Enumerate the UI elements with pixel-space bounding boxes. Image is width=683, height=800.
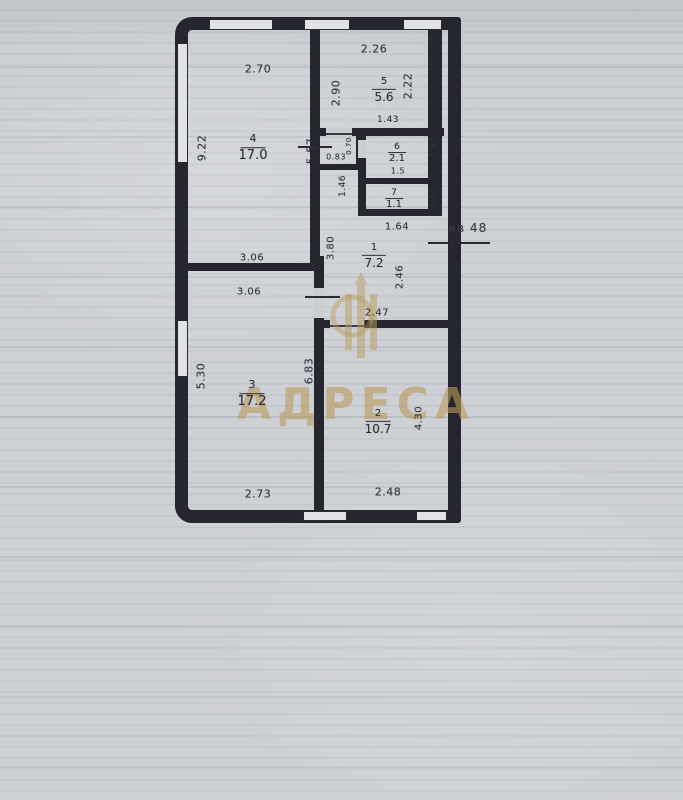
dimension-label: 3.80 bbox=[326, 236, 337, 260]
dimension-label: 3.06 bbox=[240, 253, 264, 264]
dimension-tick bbox=[428, 242, 490, 244]
room-4-label: 4 17.0 bbox=[239, 128, 268, 164]
window-left-upper bbox=[177, 43, 188, 163]
dimension-label: 2.48 bbox=[375, 486, 402, 499]
dimension-label: 1.37 bbox=[429, 137, 438, 157]
wall-closet-stub bbox=[320, 164, 358, 170]
room-number: 4 bbox=[240, 133, 265, 148]
room-1-label: 1 7.2 bbox=[362, 236, 386, 270]
door-threshold-room2 bbox=[330, 325, 364, 327]
room-number: 1 bbox=[362, 242, 386, 256]
dimension-label: 6.83 bbox=[303, 358, 316, 385]
dimension-label: 1.43 bbox=[377, 115, 399, 125]
dimension-label: 2.46 bbox=[395, 265, 406, 289]
window-bottom-right bbox=[416, 511, 447, 521]
room-area: 10.7 bbox=[365, 422, 392, 436]
dimension-label: 2.26 bbox=[361, 43, 388, 56]
window-left-lower bbox=[177, 320, 188, 377]
room-7-label: 7 1.1 bbox=[385, 181, 403, 211]
dimension-label: 2.73 bbox=[245, 488, 272, 501]
room-number: 6 bbox=[388, 142, 406, 153]
dimension-label: 2.70 bbox=[245, 63, 272, 76]
dimension-label: 0.93 bbox=[429, 189, 437, 207]
room-area: 5.6 bbox=[372, 90, 396, 104]
room-area: 7.2 bbox=[362, 256, 386, 270]
dimension-label: 1.64 bbox=[385, 222, 409, 233]
dimension-label: 9.22 bbox=[196, 135, 209, 162]
scanned-floor-plan-photo: { "watermark": { "text": "АДРЕСА" }, "no… bbox=[0, 0, 683, 800]
dimension-label: 5.57 bbox=[305, 138, 318, 165]
window-bottom-left bbox=[303, 511, 347, 521]
dimension-label: 4.30 bbox=[414, 406, 425, 430]
dimension-label: 2.90 bbox=[330, 80, 343, 107]
dimension-tick bbox=[452, 237, 454, 248]
apartment-number-note: кв 48 bbox=[449, 221, 487, 235]
wall-room4-room3 bbox=[188, 263, 320, 271]
room-2-label: 2 10.7 bbox=[365, 402, 392, 436]
room-3-label: 3 17.2 bbox=[238, 374, 267, 410]
room-area: 17.0 bbox=[239, 149, 268, 164]
dimension-tick bbox=[305, 296, 340, 298]
dimension-label: 1.5 bbox=[391, 167, 405, 176]
door-threshold-room5 bbox=[326, 133, 352, 135]
room-area: 1.1 bbox=[385, 199, 403, 211]
room-5-label: 5 5.6 bbox=[372, 70, 396, 104]
dimension-label: 2.22 bbox=[402, 73, 415, 100]
dimension-label: 2.47 bbox=[365, 308, 389, 319]
dimension-label: 3.06 bbox=[237, 287, 261, 298]
window-top-middle bbox=[304, 19, 350, 30]
dimension-label: 0.70 bbox=[345, 137, 353, 155]
dimension-label: 0.83 bbox=[326, 153, 346, 162]
window-top-right bbox=[403, 19, 442, 30]
door-opening-room3 bbox=[314, 288, 324, 318]
room-area: 17.2 bbox=[238, 395, 267, 410]
room-area: 2.1 bbox=[388, 153, 406, 165]
room-6-label: 6 2.1 bbox=[388, 135, 406, 165]
room-number: 2 bbox=[366, 408, 390, 422]
window-top-left bbox=[209, 19, 273, 30]
door-opening-bathroom bbox=[358, 140, 366, 158]
room-number: 5 bbox=[372, 76, 396, 90]
room-number: 7 bbox=[385, 188, 403, 199]
dimension-label: 5.30 bbox=[195, 363, 208, 390]
room-number: 3 bbox=[239, 379, 264, 394]
dimension-label: 1.46 bbox=[338, 175, 348, 197]
